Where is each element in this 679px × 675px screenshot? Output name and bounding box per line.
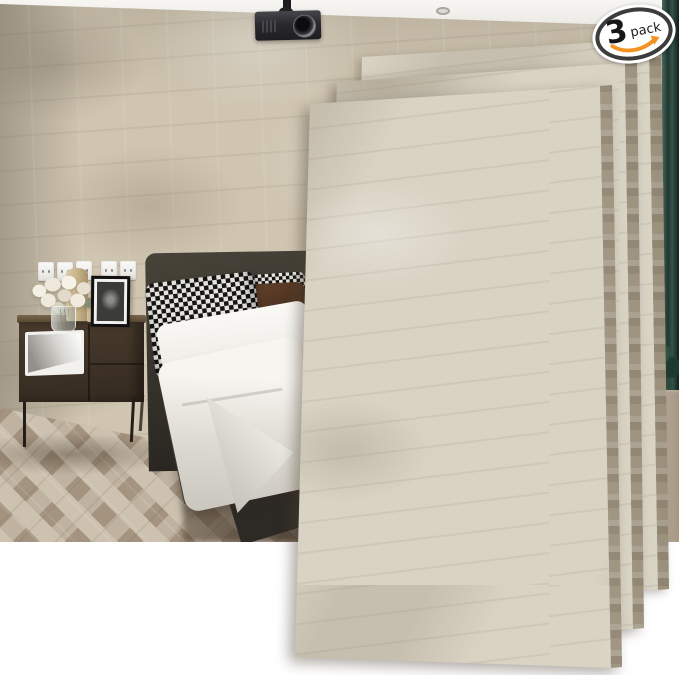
nightstand-seam: [90, 363, 144, 365]
picture-frame-photo: [97, 282, 124, 321]
nightstand-leg: [23, 401, 26, 447]
picture-frame: [91, 276, 131, 327]
nightstand-open-shelf: [25, 330, 84, 376]
bedroom-scene-photo: [0, 0, 679, 542]
product-image: 3 pack: [0, 0, 679, 675]
picture-frame-mat: [94, 279, 127, 324]
projector: [255, 10, 322, 41]
curtain: [662, 0, 679, 400]
lounge-seat: [654, 390, 679, 542]
recessed-light: [436, 7, 450, 15]
glass-vase: [51, 306, 76, 332]
